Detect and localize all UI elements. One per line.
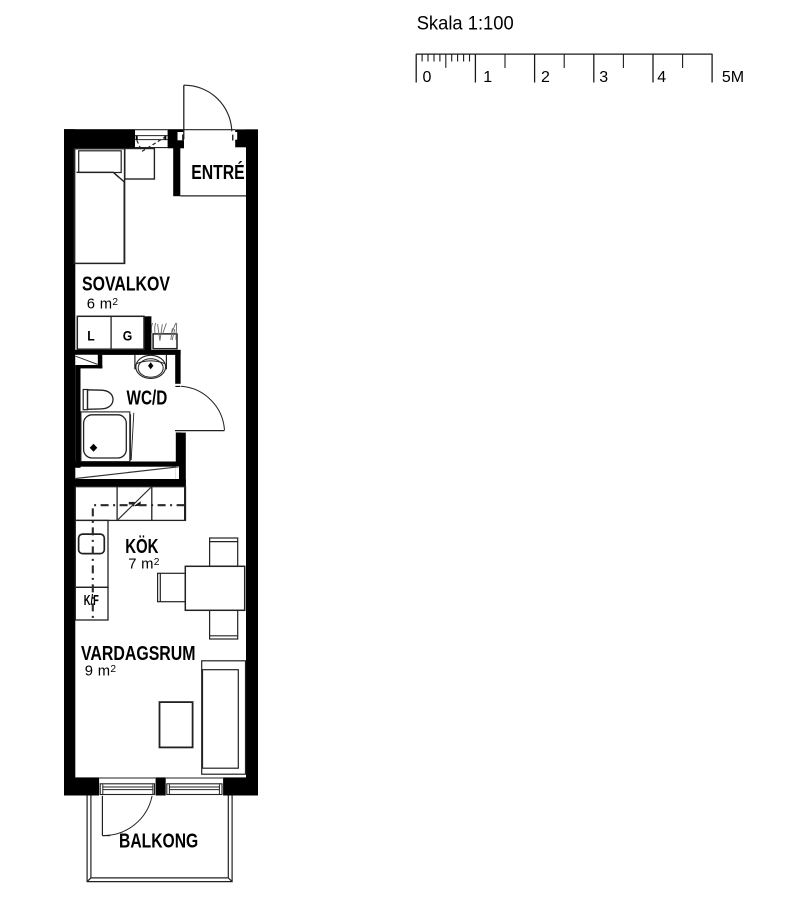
svg-text:9 m2: 9 m2 [85,663,117,679]
svg-text:KÖK: KÖK [125,535,159,558]
svg-text:3: 3 [599,69,608,86]
svg-text:VARDAGSRUM: VARDAGSRUM [81,643,196,665]
svg-text:WC/D: WC/D [127,387,168,409]
svg-text:6 m2: 6 m2 [87,297,119,313]
svg-text:ENTRÉ: ENTRÉ [191,161,245,184]
svg-text:G: G [123,327,133,343]
svg-text:Skala 1:100: Skala 1:100 [417,14,514,35]
svg-text:2: 2 [541,69,550,86]
svg-text:5M: 5M [722,69,744,86]
svg-text:7 m2: 7 m2 [128,557,160,573]
svg-text:K/F: K/F [84,593,99,609]
svg-text:4: 4 [657,69,666,86]
svg-text:1: 1 [483,69,492,86]
svg-text:0: 0 [423,69,432,86]
svg-text:BALKONG: BALKONG [119,830,198,852]
svg-text:L: L [87,327,95,343]
svg-text:SOVALKOV: SOVALKOV [82,273,171,295]
